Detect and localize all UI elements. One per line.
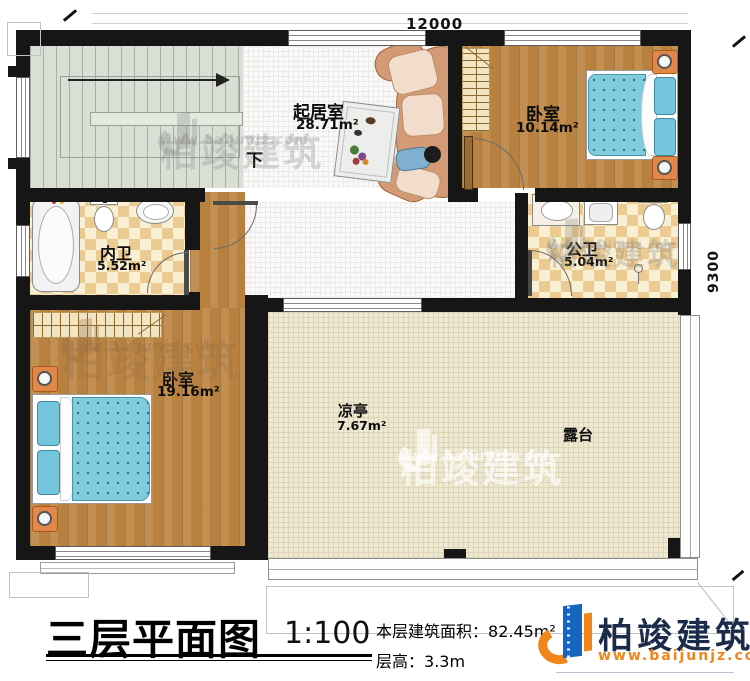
bed-main-pillow2 bbox=[37, 450, 60, 495]
bed-main-pillow1 bbox=[37, 401, 60, 446]
stair-direction-arrowhead bbox=[216, 73, 230, 87]
wall bbox=[268, 298, 283, 312]
nightstand-main-2 bbox=[32, 506, 58, 532]
floor-area-label: 本层建筑面积： bbox=[376, 622, 488, 641]
wall bbox=[678, 30, 691, 223]
wall bbox=[448, 188, 478, 202]
axis-tick bbox=[732, 570, 745, 581]
wall bbox=[535, 188, 691, 202]
floor-drain bbox=[634, 264, 643, 273]
floor-drain-stem bbox=[638, 273, 639, 284]
window bbox=[16, 77, 30, 158]
title-underline-thin bbox=[46, 660, 372, 661]
dimension-right: 9300 bbox=[706, 250, 722, 293]
toilet-private-bowl bbox=[94, 206, 114, 232]
sink-public-basin bbox=[541, 200, 573, 221]
wardrobe-rod bbox=[33, 325, 161, 326]
wall bbox=[16, 277, 30, 560]
window bbox=[678, 223, 691, 270]
nightstand-top-1 bbox=[652, 50, 678, 74]
plan-title: 三层平面图 bbox=[46, 606, 261, 667]
wardrobe-rod bbox=[476, 49, 477, 131]
stair-rail bbox=[90, 112, 243, 126]
title-underline-thick bbox=[46, 654, 372, 657]
eave-line bbox=[92, 13, 688, 14]
brand-url: www.baijunjz.com bbox=[598, 648, 750, 664]
lamp-icon bbox=[37, 511, 52, 526]
wall bbox=[211, 546, 268, 560]
floor-plan-page: 下 bbox=[0, 0, 750, 681]
bed-top-pillow2 bbox=[654, 118, 676, 156]
wall bbox=[422, 298, 691, 312]
washing-machine-drum bbox=[589, 203, 613, 222]
wall bbox=[678, 270, 691, 315]
stair-down-label: 下 bbox=[246, 146, 263, 171]
sink-private-basin bbox=[143, 204, 169, 220]
room-area-living: 28.71m² bbox=[296, 117, 359, 133]
wardrobe-top-bedroom bbox=[462, 48, 490, 132]
room-area-pavilion: 7.67m² bbox=[337, 418, 386, 433]
lamp-icon bbox=[37, 371, 52, 386]
wall bbox=[448, 30, 462, 202]
terrace-railing-bottom bbox=[268, 558, 698, 580]
wall bbox=[185, 188, 200, 250]
window bbox=[504, 30, 641, 46]
lamp-icon bbox=[657, 160, 672, 175]
brand-divider bbox=[556, 672, 734, 673]
sofa-cushion2 bbox=[401, 93, 446, 138]
eave-outline bbox=[7, 22, 41, 56]
bed-top-mattress bbox=[588, 74, 646, 156]
dimension-top: 12000 bbox=[406, 15, 463, 33]
window bbox=[55, 546, 211, 560]
brand-logo-icon bbox=[540, 604, 594, 666]
room-area-bath-private: 5.52m² bbox=[97, 258, 146, 273]
wall bbox=[245, 295, 268, 560]
floor-height-label: 层高： bbox=[376, 652, 424, 671]
bathtub-basin bbox=[38, 206, 74, 284]
wall bbox=[515, 193, 528, 312]
terrace-floor bbox=[268, 312, 680, 560]
wall bbox=[16, 188, 205, 202]
wall bbox=[8, 66, 30, 77]
eave-outline bbox=[9, 572, 89, 598]
wardrobe-diagonal bbox=[465, 46, 494, 69]
toilet-public-bowl bbox=[643, 204, 665, 230]
nightstand-main-1 bbox=[32, 366, 58, 392]
central-hall-floor bbox=[245, 202, 515, 298]
bed-main-mattress bbox=[72, 397, 150, 501]
nightstand-top-2 bbox=[652, 156, 678, 180]
wall bbox=[16, 546, 55, 560]
wall bbox=[16, 30, 288, 46]
bathtub bbox=[32, 198, 80, 292]
bed-top-pillow1 bbox=[654, 77, 676, 115]
wall bbox=[16, 295, 185, 310]
person-head bbox=[424, 146, 441, 163]
wardrobe-main-bedroom bbox=[32, 312, 162, 338]
logo-tower bbox=[563, 604, 582, 658]
sliding-door bbox=[283, 298, 422, 312]
axis-tick bbox=[732, 35, 746, 48]
logo-tower-accent bbox=[584, 613, 592, 652]
eave-line bbox=[92, 23, 688, 24]
floor-height-info: 层高：3.3m bbox=[376, 648, 465, 672]
terrace-railing-right bbox=[680, 315, 700, 558]
axis-tick bbox=[63, 9, 77, 22]
floor-height-value: 3.3m bbox=[424, 652, 465, 671]
window bbox=[16, 225, 30, 277]
room-area-bath-public: 5.04m² bbox=[564, 254, 613, 269]
room-label-terrace: 露台 bbox=[563, 424, 593, 445]
room-area-bedroom-top: 10.14m² bbox=[516, 120, 579, 136]
lamp-icon bbox=[657, 54, 672, 69]
floor-area-info: 本层建筑面积：82.45m² bbox=[376, 618, 556, 642]
plan-scale: 1:100 bbox=[284, 616, 370, 651]
room-area-bedroom-main: 19.16m² bbox=[157, 384, 220, 400]
stair-direction-line bbox=[68, 79, 216, 81]
